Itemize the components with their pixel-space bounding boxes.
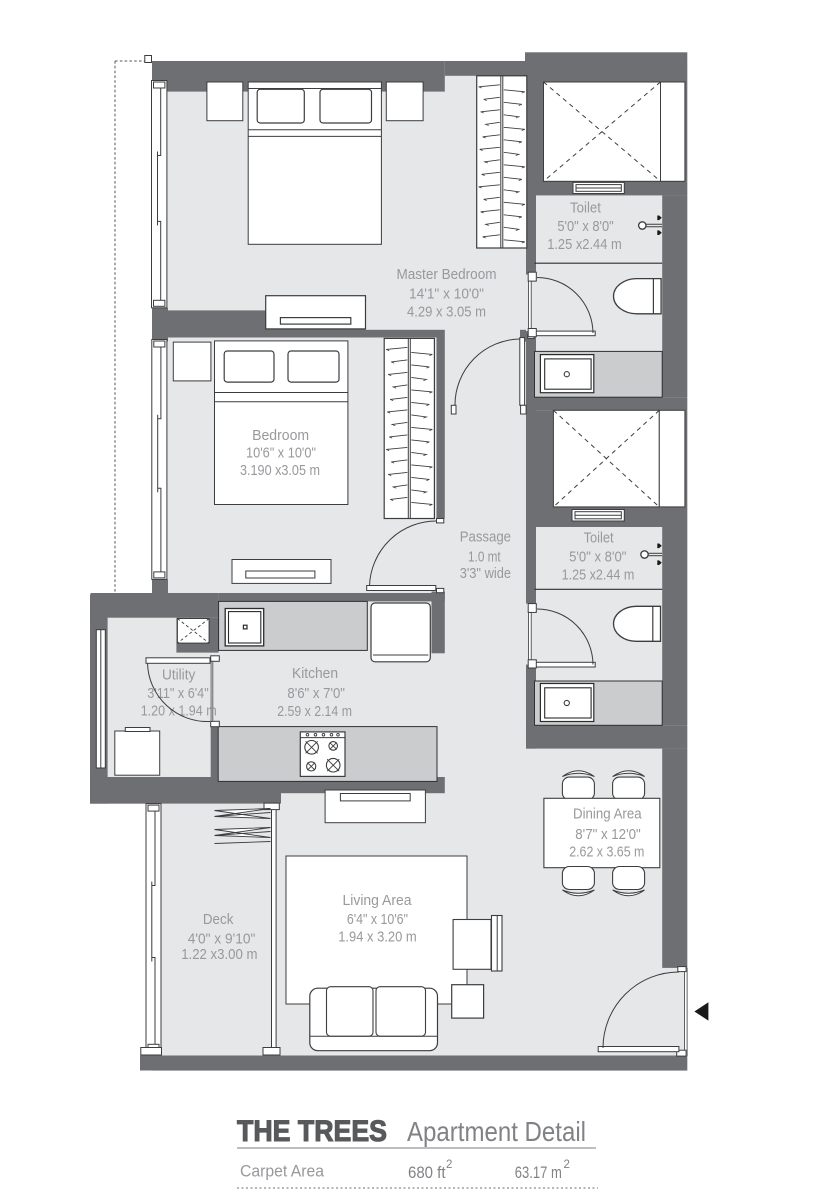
svg-text:2: 2 (446, 1159, 452, 1171)
svg-text:Kitchen: Kitchen (292, 665, 338, 682)
svg-text:10'6" x 10'0": 10'6" x 10'0" (246, 444, 316, 461)
svg-text:Utility: Utility (162, 667, 196, 684)
svg-text:Master Bedroom: Master Bedroom (397, 266, 497, 283)
svg-text:6'4" x 10'6": 6'4" x 10'6" (347, 911, 408, 928)
svg-text:1.25 x2.44 m: 1.25 x2.44 m (562, 567, 635, 584)
svg-text:8'6" x 7'0": 8'6" x 7'0" (287, 685, 345, 702)
svg-text:3.190 x3.05 m: 3.190 x3.05 m (240, 462, 320, 479)
svg-text:4'0" x 9'10": 4'0" x 9'10" (188, 931, 256, 948)
svg-text:1.94 x 3.20 m: 1.94 x 3.20 m (338, 929, 417, 946)
svg-text:2: 2 (564, 1159, 570, 1171)
svg-text:1.20 x 1.94 m: 1.20 x 1.94 m (141, 703, 217, 720)
svg-text:Toilet: Toilet (570, 200, 602, 217)
svg-text:Toilet: Toilet (584, 530, 615, 547)
svg-text:14'1" x 10'0": 14'1" x 10'0" (409, 286, 484, 303)
svg-text:5'0" x 8'0": 5'0" x 8'0" (569, 549, 626, 566)
svg-text:2.62 x 3.65 m: 2.62 x 3.65 m (569, 844, 644, 861)
svg-text:Apartment Detail: Apartment Detail (407, 1116, 586, 1147)
svg-text:Passage: Passage (460, 529, 511, 546)
svg-text:2.59 x 2.14 m: 2.59 x 2.14 m (277, 703, 352, 720)
svg-text:8'7" x 12'0": 8'7" x 12'0" (575, 826, 640, 843)
svg-text:5'0" x 8'0": 5'0" x 8'0" (557, 218, 613, 235)
svg-text:1.25 x2.44 m: 1.25 x2.44 m (547, 236, 622, 253)
svg-text:Carpet Area: Carpet Area (240, 1163, 325, 1181)
svg-text:1.22 x3.00 m: 1.22 x3.00 m (181, 946, 257, 963)
svg-text:3'3" wide: 3'3" wide (460, 565, 511, 582)
svg-text:4.29 x 3.05 m: 4.29 x 3.05 m (407, 304, 486, 321)
svg-text:63.17 m: 63.17 m (515, 1164, 562, 1182)
svg-text:Deck: Deck (203, 911, 234, 928)
svg-text:Dining Area: Dining Area (573, 806, 642, 823)
svg-text:THE TREES: THE TREES (237, 1115, 387, 1148)
svg-text:1.0 mt: 1.0 mt (468, 549, 501, 566)
svg-text:680 ft: 680 ft (408, 1164, 446, 1182)
svg-text:Living Area: Living Area (343, 892, 413, 909)
svg-text:Bedroom: Bedroom (252, 427, 309, 444)
